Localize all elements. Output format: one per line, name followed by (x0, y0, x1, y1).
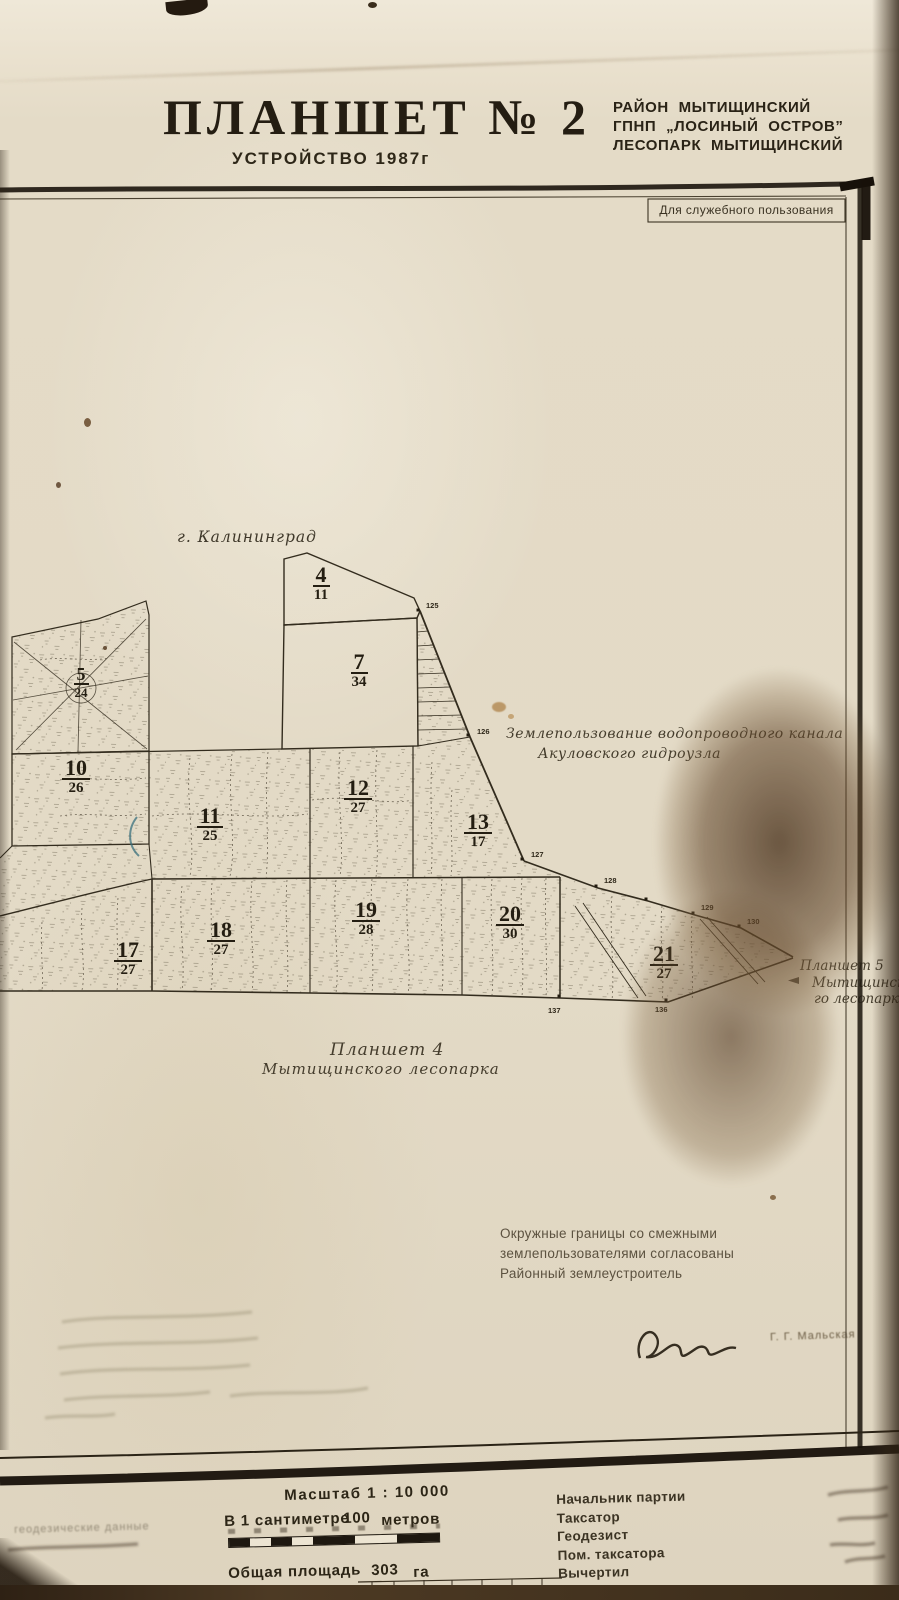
quarter-label-20: 2030 (492, 904, 528, 942)
quarter-area: 27 (110, 962, 146, 978)
paper-speck (770, 1195, 776, 1200)
quarter-label-21: 2127 (646, 944, 682, 982)
boundary-point-label: 127 (531, 850, 544, 859)
quarter-area: 27 (340, 800, 376, 816)
paper-speck (492, 702, 506, 712)
quarter-label-13: 1317 (460, 812, 496, 850)
paper-speck (56, 482, 61, 488)
neighbor-arrow-icon (788, 977, 799, 984)
boundary-point-label: 125 (426, 601, 439, 610)
paper-speck (103, 646, 107, 650)
quarter-label-7: 734 (341, 652, 377, 690)
map-sheet-photo: ПЛАНШЕТ № 2 УСТРОЙСТВО 1987г РАЙОН МЫТИЩ… (0, 0, 899, 1600)
boundary-point-label: 130 (747, 917, 760, 926)
quarter-number: 5 (74, 666, 89, 685)
paper-speck (508, 714, 514, 719)
quarter-label-5: 524 (63, 666, 99, 701)
photo-edge-shadow-left (0, 150, 10, 1450)
quarter-label-10: 1026 (58, 758, 94, 796)
quarter-label-11: 1125 (192, 806, 228, 844)
boundary-point-label: 126 (477, 727, 490, 736)
quarter-number: 11 (197, 806, 224, 828)
quarter-area: 25 (192, 828, 228, 844)
quarter-area: 11 (303, 587, 339, 603)
boundary-point-label: 129 (701, 903, 714, 912)
quarter-number: 20 (496, 904, 524, 926)
faint-footer-handwriting (8, 1487, 888, 1562)
quarter-area: 34 (341, 674, 377, 690)
quarter-area: 26 (58, 780, 94, 796)
quarter-label-18: 1827 (203, 920, 239, 958)
quarter-area: 28 (348, 922, 384, 938)
quarter-number: 7 (351, 652, 368, 674)
map-canvas (0, 0, 899, 1600)
photo-edge-shadow-bottom (0, 1585, 899, 1600)
quarter-label-12: 1227 (340, 778, 376, 816)
quarter-area: 24 (63, 685, 99, 701)
quarter-number: 12 (344, 778, 372, 800)
paper-speck (368, 2, 377, 8)
classification-box (648, 199, 845, 222)
paper-speck (84, 418, 91, 427)
quarter-area: 30 (492, 926, 528, 942)
quarter-number: 21 (650, 944, 678, 966)
boundary-point-label: 137 (548, 1006, 561, 1015)
quarter-number: 18 (207, 920, 235, 942)
quarter-label-17: 1727 (110, 940, 146, 978)
quarter-number: 17 (114, 940, 142, 962)
quarter-label-19: 1928 (348, 900, 384, 938)
boundary-point-label: 128 (604, 876, 617, 885)
quarter-area: 27 (203, 942, 239, 958)
quarter-number: 13 (464, 812, 492, 834)
faint-pencil-annotation (45, 1312, 368, 1418)
quarter-number: 19 (352, 900, 380, 922)
boundary-point-label: 136 (655, 1005, 668, 1014)
signature-flourish (639, 1332, 736, 1358)
quarter-number: 4 (313, 565, 330, 587)
quarter-area: 17 (460, 834, 496, 850)
photo-edge-shadow-right (872, 0, 899, 1600)
quarter-label-4: 411 (303, 565, 339, 603)
quarter-number: 10 (62, 758, 90, 780)
quarter-area: 27 (646, 966, 682, 982)
